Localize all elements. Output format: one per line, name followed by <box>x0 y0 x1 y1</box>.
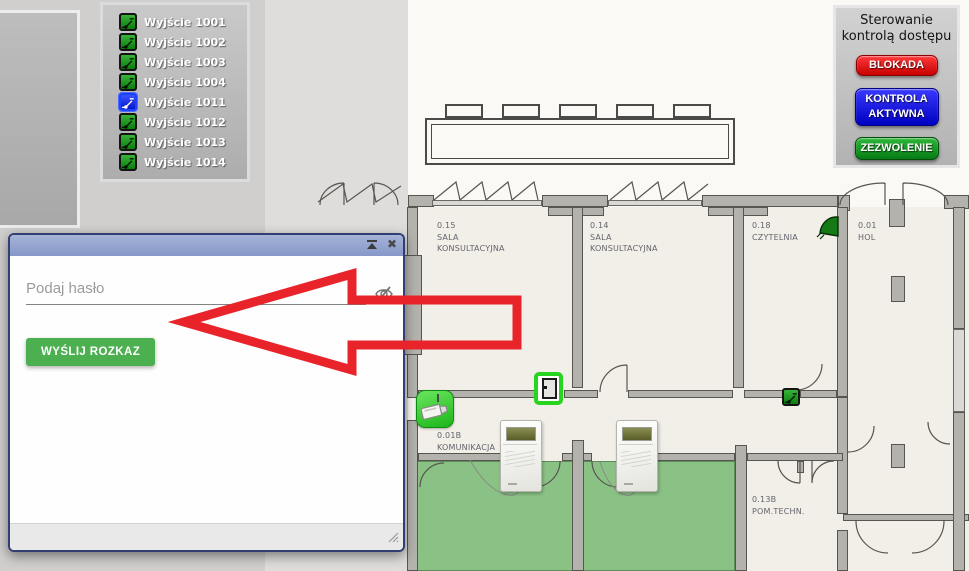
wall <box>747 453 843 461</box>
list-item-label: Wyjście 1012 <box>144 116 226 129</box>
list-item-label: Wyjście 1013 <box>144 136 226 149</box>
list-item-output-1004[interactable]: Wyjście 1004 <box>103 72 247 92</box>
wall <box>572 440 584 571</box>
door-leaf-glyph <box>542 378 557 399</box>
wall <box>407 420 418 571</box>
chair-outline <box>616 104 654 118</box>
room-label: 0.13B POM.TECHN. <box>752 494 836 517</box>
list-item-label: Wyjście 1001 <box>144 16 226 29</box>
scada-workspace: 0.15 SALA KONSULTACYJNA 0.14 SALA KONSUL… <box>0 0 969 571</box>
wall <box>542 195 608 207</box>
camera-icon[interactable] <box>416 390 454 428</box>
wall <box>628 390 733 398</box>
chair-outline <box>559 104 597 118</box>
relay-icon[interactable] <box>782 388 800 406</box>
room-id: 0.13B <box>752 494 836 506</box>
list-item-label: Wyjście 1003 <box>144 56 226 69</box>
chair-outline <box>673 104 711 118</box>
motion-sensor-glyph <box>816 214 840 240</box>
table-outline <box>425 118 735 165</box>
relay-icon <box>119 133 137 151</box>
relay-icon <box>119 53 137 71</box>
highlighted-room <box>583 461 735 571</box>
camera-glyph <box>417 391 453 427</box>
dialog-titlebar[interactable]: ✖ <box>10 235 403 257</box>
list-item-output-1013[interactable]: Wyjście 1013 <box>103 132 247 152</box>
list-item-label: Wyjście 1014 <box>144 156 226 169</box>
room-id: 0.14 <box>590 220 674 232</box>
dialog-footer <box>10 523 403 550</box>
wall <box>408 195 434 207</box>
list-item-label: Wyjście 1011 <box>144 96 226 109</box>
list-item-label: Wyjście 1002 <box>144 36 226 49</box>
wall <box>837 530 848 571</box>
room-label: 0.14 SALA KONSULTACYJNA <box>590 220 674 255</box>
reader-lcd <box>506 427 536 441</box>
side-panel <box>0 10 80 228</box>
wall <box>953 412 965 571</box>
relay-icon <box>119 153 137 171</box>
wall <box>800 390 837 398</box>
room-label: 0.15 SALA KONSULTACYJNA <box>437 220 521 255</box>
panel-title: Sterowanie kontrolą dostępu <box>836 13 957 46</box>
list-item-output-1014[interactable]: Wyjście 1014 <box>103 152 247 172</box>
wall <box>572 207 583 388</box>
relay-icon <box>119 33 137 51</box>
relay-icon <box>119 73 137 91</box>
relay-icon <box>119 13 137 31</box>
window-sill <box>608 200 702 206</box>
list-item-output-1012[interactable]: Wyjście 1012 <box>103 112 247 132</box>
kontrola-aktywna-button[interactable]: KONTROLA AKTYWNA <box>855 88 939 126</box>
table-inner-outline <box>431 124 729 159</box>
door-icon[interactable] <box>534 372 563 405</box>
card-reader <box>500 420 542 492</box>
wall <box>843 514 969 521</box>
wall <box>702 195 838 207</box>
access-control-panel: Sterowanie kontrolą dostępu BLOKADA KONT… <box>833 5 960 168</box>
zezwolenie-button[interactable]: ZEZWOLENIE <box>855 137 939 160</box>
card-reader <box>616 420 658 492</box>
room-name: KOMUNIKACJA <box>437 443 495 452</box>
wall <box>564 390 598 398</box>
close-icon[interactable]: ✖ <box>387 237 397 251</box>
wall <box>797 461 804 473</box>
room-name: SALA KONSULTACYJNA <box>590 233 658 254</box>
eye-off-glyph <box>373 284 395 304</box>
relay-icon <box>119 113 137 131</box>
window-sill <box>432 200 542 206</box>
command-dialog: ✖ WYŚLIJ ROZKAZ <box>8 233 405 552</box>
eye-off-icon[interactable] <box>373 284 395 304</box>
wall <box>735 445 747 571</box>
rollup-icon[interactable] <box>366 240 378 251</box>
room-id: 0.15 <box>437 220 521 232</box>
room-id: 0.01 <box>858 220 942 232</box>
relay-icon-selected <box>119 93 137 111</box>
room-name: HOL <box>858 233 875 242</box>
list-item-output-1011[interactable]: Wyjście 1011 <box>103 92 247 112</box>
list-item-output-1003[interactable]: Wyjście 1003 <box>103 52 247 72</box>
list-item-output-1001[interactable]: Wyjście 1001 <box>103 12 247 32</box>
resize-handle-icon[interactable] <box>388 528 399 547</box>
reader-lcd <box>622 427 652 441</box>
room-name: CZYTELNIA <box>752 233 798 242</box>
send-command-button[interactable]: WYŚLIJ ROZKAZ <box>26 338 155 366</box>
password-input[interactable] <box>26 280 366 305</box>
list-item-output-1002[interactable]: Wyjście 1002 <box>103 32 247 52</box>
wall <box>403 255 422 355</box>
blokada-button[interactable]: BLOKADA <box>856 55 938 76</box>
room-label: 0.01 HOL <box>858 220 942 243</box>
wall <box>744 390 784 398</box>
chair-outline <box>502 104 540 118</box>
list-item-label: Wyjście 1004 <box>144 76 226 89</box>
wall <box>953 207 965 329</box>
window-sill <box>953 329 965 412</box>
relay-glyph <box>784 391 798 405</box>
room-name: POM.TECHN. <box>752 507 805 516</box>
pillar <box>891 276 905 302</box>
pillar <box>891 444 905 468</box>
highlighted-room <box>417 461 573 571</box>
output-list-panel: Wyjście 1001 Wyjście 1002 Wyjście 1003 W… <box>100 2 250 182</box>
wall <box>733 207 744 388</box>
chair-outline <box>445 104 483 118</box>
room-name: SALA KONSULTACYJNA <box>437 233 505 254</box>
motion-sensor-icon[interactable] <box>816 214 840 240</box>
dialog-body: WYŚLIJ ROZKAZ <box>10 256 403 524</box>
